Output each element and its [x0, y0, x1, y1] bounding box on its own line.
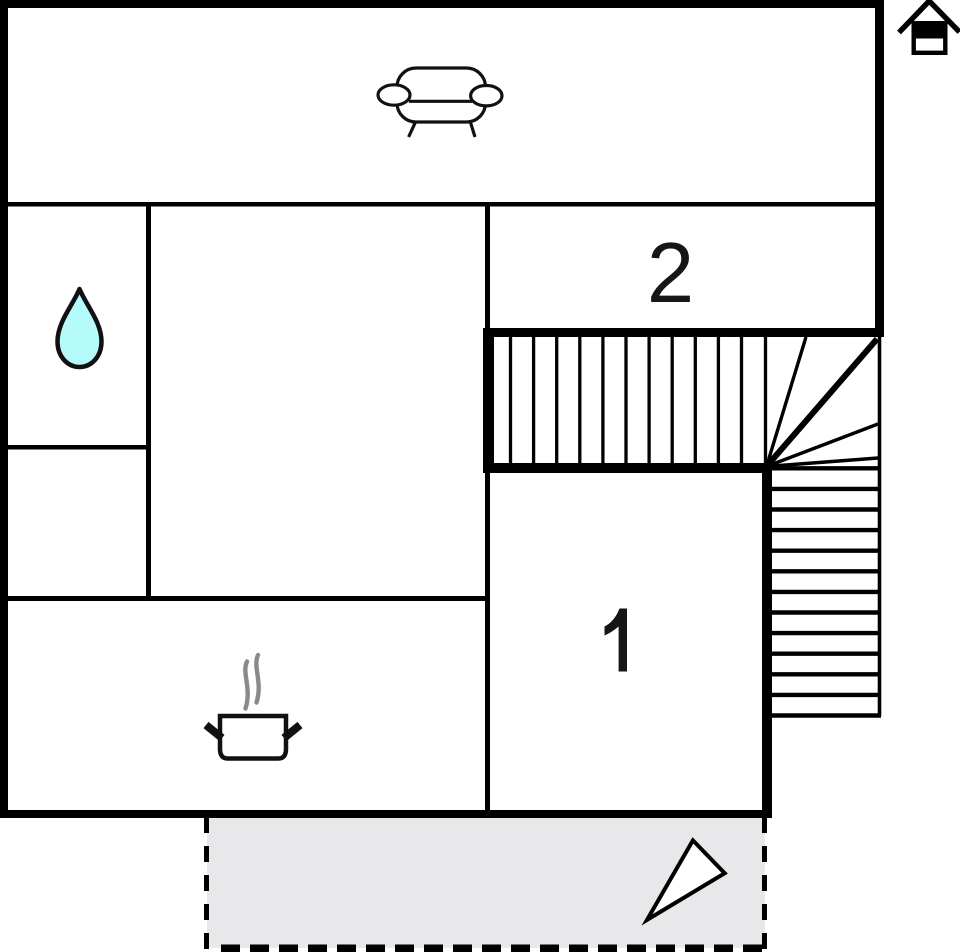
svg-text:2: 2 [647, 226, 694, 321]
